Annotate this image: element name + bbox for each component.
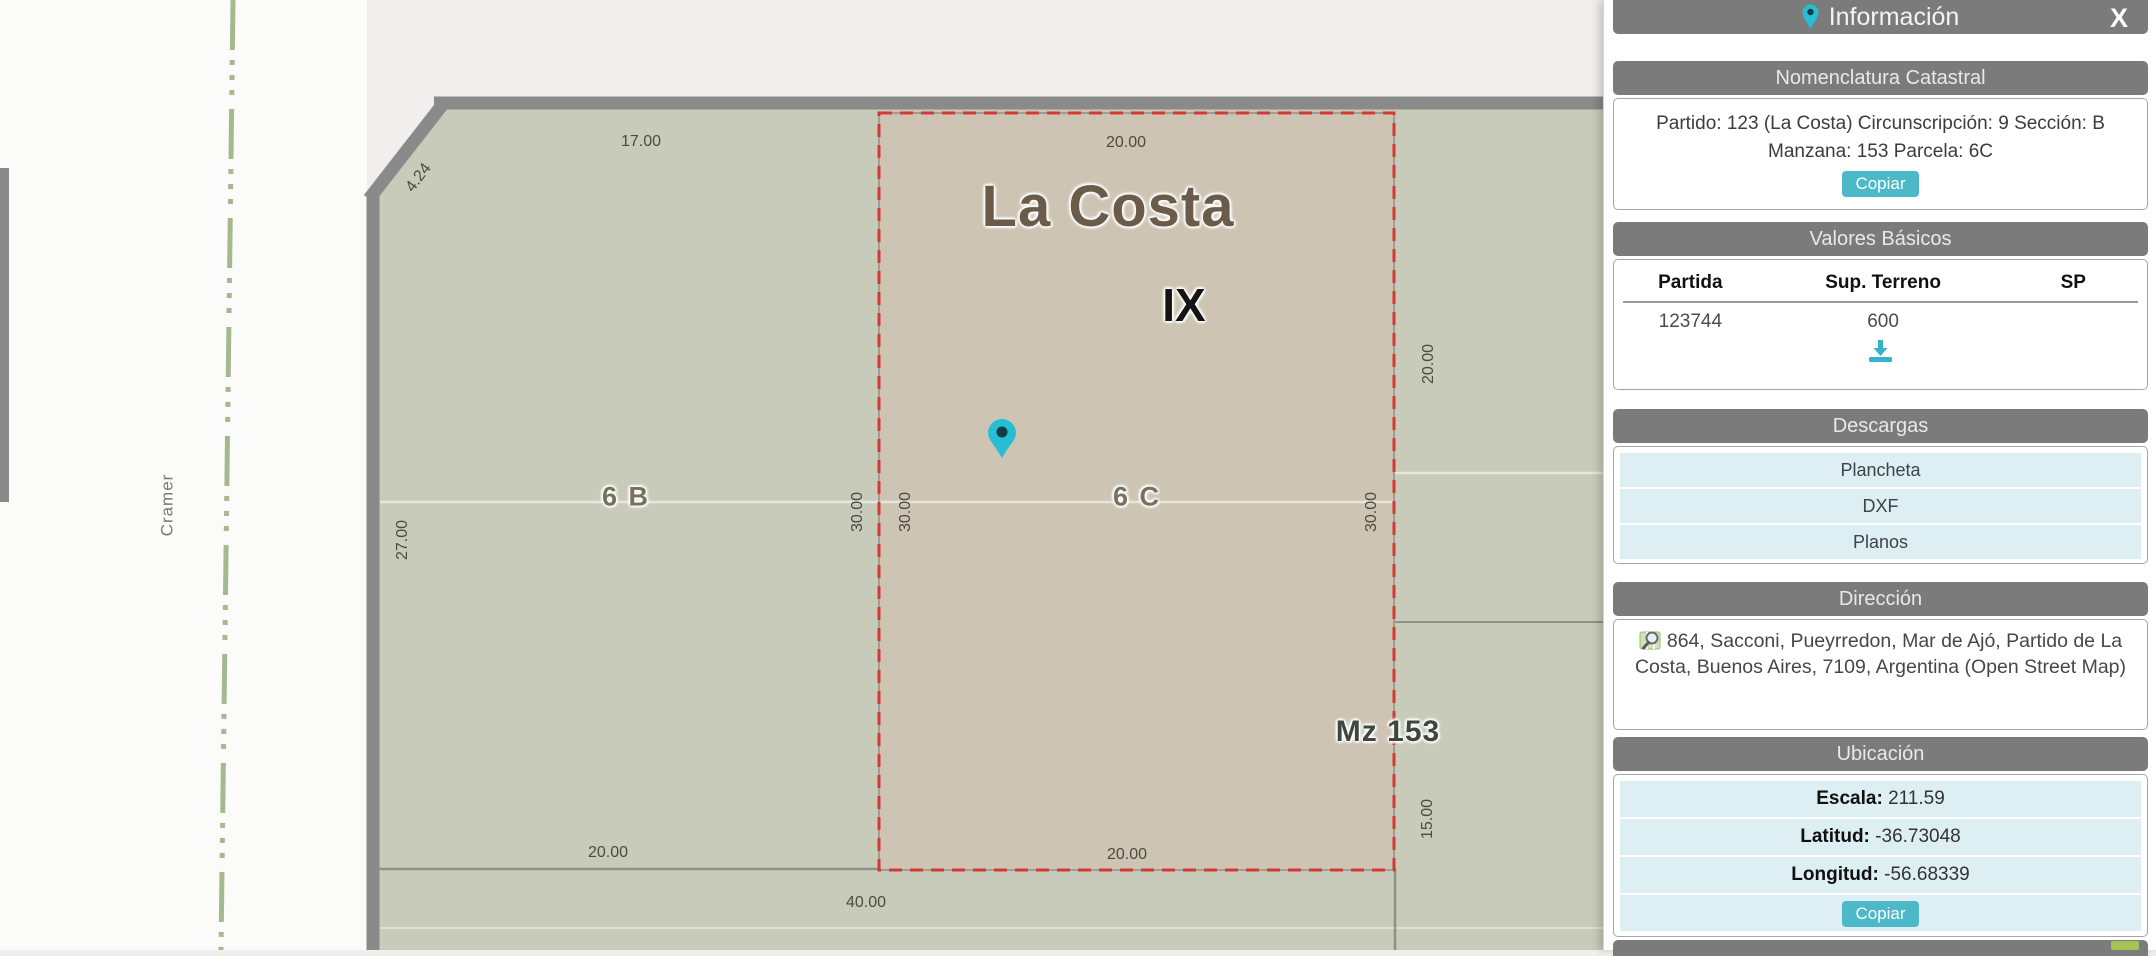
dimension-label-20-right: 20.00 bbox=[1421, 344, 1437, 384]
longitude-row: Longitud: -56.68339 bbox=[1620, 857, 2141, 893]
section-header-descargas: Descargas bbox=[1613, 409, 2148, 443]
longitude-label: Longitud: bbox=[1791, 864, 1879, 885]
download-link-plancheta[interactable]: Plancheta bbox=[1620, 453, 2141, 487]
copy-nomenclatura-button[interactable]: Copiar bbox=[1842, 171, 1918, 197]
dimension-label-20-top: 20.00 bbox=[1106, 135, 1146, 151]
section-roman-label: IX bbox=[1162, 282, 1205, 328]
column-header-sp: SP bbox=[2006, 272, 2141, 294]
dimension-label-15: 15.00 bbox=[1420, 799, 1436, 839]
section-body-valores: Partida Sup. Terreno SP 123744 600 bbox=[1613, 259, 2148, 390]
scale-row: Escala: 211.59 bbox=[1620, 781, 2141, 817]
parcel-label-6b: 6 B bbox=[602, 484, 650, 511]
dimension-label-20-bottom-right: 20.00 bbox=[1107, 847, 1147, 863]
scale-label: Escala: bbox=[1816, 788, 1883, 809]
dimension-label-17: 17.00 bbox=[621, 134, 661, 150]
dimension-label-30-left: 30.00 bbox=[850, 492, 866, 532]
map-pin-icon bbox=[1802, 4, 1819, 30]
section-header-ubicacion: Ubicación bbox=[1613, 737, 2148, 771]
section-body-descargas: Plancheta DXF Planos bbox=[1613, 446, 2148, 564]
dimension-label-40: 40.00 bbox=[846, 895, 886, 911]
value-sup-terreno: 600 bbox=[1761, 311, 2006, 333]
table-separator bbox=[1623, 301, 2138, 303]
scale-value: 211.59 bbox=[1888, 788, 1945, 809]
address-text-wrap: 864, Sacconi, Pueyrredon, Mar de Ajó, Pa… bbox=[1614, 620, 2147, 689]
dimension-label-30-right: 30.00 bbox=[898, 492, 914, 532]
map-search-icon bbox=[1639, 629, 1662, 651]
close-button[interactable]: X bbox=[2104, 1, 2134, 35]
neighbor-block-edge bbox=[0, 168, 9, 502]
longitude-value: -56.68339 bbox=[1884, 864, 1970, 885]
legend-chip bbox=[2111, 941, 2139, 950]
nomenclatura-line1: Partido: 123 (La Costa) Circunscripción:… bbox=[1614, 110, 2147, 138]
copy-coordinates-button[interactable]: Copiar bbox=[1842, 901, 1918, 927]
column-header-partida: Partida bbox=[1620, 272, 1761, 294]
info-panel: Información X Nomenclatura Catastral Par… bbox=[1603, 0, 2156, 950]
latitude-label: Latitud: bbox=[1800, 826, 1870, 847]
section-body-nomenclatura: Partido: 123 (La Costa) Circunscripción:… bbox=[1613, 98, 2148, 210]
section-header-nomenclatura: Nomenclatura Catastral bbox=[1613, 61, 2148, 95]
section-body-ubicacion: Escala: 211.59 Latitud: -36.73048 Longit… bbox=[1613, 774, 2148, 937]
copy-coordinates-row: Copiar bbox=[1620, 895, 2141, 931]
block-number-label: Mz 153 bbox=[1336, 717, 1440, 747]
street-cramer bbox=[0, 0, 367, 950]
download-link-dxf[interactable]: DXF bbox=[1620, 489, 2141, 523]
column-header-sup-terreno: Sup. Terreno bbox=[1761, 272, 2006, 294]
download-link-planos[interactable]: Planos bbox=[1620, 525, 2141, 559]
value-sp bbox=[2006, 311, 2141, 333]
latitude-value: -36.73048 bbox=[1875, 826, 1961, 847]
parcel-label-6c: 6 C bbox=[1113, 484, 1161, 511]
panel-title: Información bbox=[1829, 0, 1960, 34]
nomenclatura-line2: Manzana: 153 Parcela: 6C bbox=[1614, 138, 2147, 166]
section-header-partial bbox=[1613, 940, 2148, 956]
city-label: La Costa bbox=[982, 178, 1235, 236]
section-body-direccion: 864, Sacconi, Pueyrredon, Mar de Ajó, Pa… bbox=[1613, 619, 2148, 730]
valores-header-row: Partida Sup. Terreno SP bbox=[1620, 272, 2141, 294]
value-partida: 123744 bbox=[1620, 311, 1761, 333]
dimension-label-20-bottom-left: 20.00 bbox=[588, 845, 628, 861]
download-icon[interactable] bbox=[1867, 339, 1894, 362]
address-text: 864, Sacconi, Pueyrredon, Mar de Ajó, Pa… bbox=[1635, 630, 2126, 678]
section-header-direccion: Dirección bbox=[1613, 582, 2148, 616]
valores-value-row: 123744 600 bbox=[1620, 311, 2141, 333]
dimension-label-27: 27.00 bbox=[395, 520, 411, 560]
dimension-label-30-east: 30.00 bbox=[1364, 492, 1380, 532]
panel-title-bar: Información X bbox=[1613, 0, 2148, 34]
section-header-valores: Valores Básicos bbox=[1613, 222, 2148, 256]
latitude-row: Latitud: -36.73048 bbox=[1620, 819, 2141, 855]
street-name-label: Cramer bbox=[159, 474, 176, 537]
